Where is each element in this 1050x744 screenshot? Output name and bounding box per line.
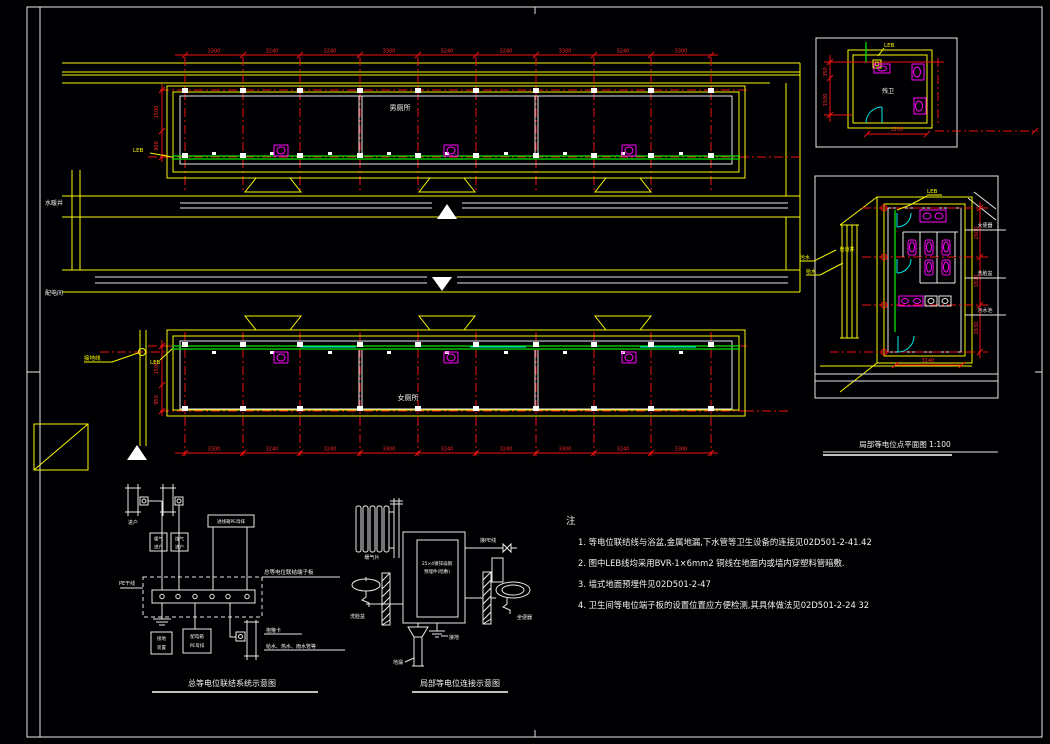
dim-label: 3300 [675,447,688,453]
shaft-label-bottom: 配电间 [45,289,63,297]
pipe-label: 给水 [806,268,816,275]
section-arrow-down [432,277,452,291]
shaft-label: 管道井 [839,246,854,253]
dim-label: 3300 [208,49,221,55]
detail-title: 局部等电位点平面图 1:100 [859,439,951,449]
top-floor-plan: 3300 3240 3240 3300 3240 3240 3300 3240 … [133,49,800,193]
door-arc [897,259,911,273]
side-label: 污水池 [977,307,992,314]
dim-label: 3240 [441,447,454,453]
basin-label: 洗脸盆 [350,613,365,620]
box-label: 接地 [157,635,166,642]
schematic-title: 局部等电位连接示意图 [420,678,500,688]
notes-header: 注 [566,515,576,527]
dim-label: 3240 [617,447,630,453]
dim-label: 3300 [675,49,688,55]
dim-label: 3300 [383,447,396,453]
box-label: 进户 [154,544,163,551]
dim-label: 1500 [823,94,829,107]
schematic-title: 总等电位联结系统示意图 [188,678,276,688]
bottom-floor-plan: 3300 3240 3240 3300 3240 3240 3300 3240 … [84,316,790,456]
dim-label: 3240 [324,49,337,55]
dim-label: 900 [154,141,160,151]
dim-label: 3240 [441,49,454,55]
fixture [899,210,951,306]
leb-label: LEB [133,148,144,154]
dim-label: 2630 [974,322,980,335]
busbar-left-label: PE干线 [119,580,135,587]
box-label: 进线箱PE母排 [217,518,246,525]
dim-label: 3300 [383,49,396,55]
leb-label: LEB [927,189,938,195]
dim-label: 3140 [922,358,935,364]
pipe-label: 污水 [800,254,810,261]
door-arc [866,107,882,123]
busbar-label: 总等电位联结端子板 [264,568,314,576]
section-arrow-up [437,204,457,219]
dim-label: 3240 [266,447,279,453]
note-item: 1. 等电位联结线与浴盆,金属地漏,下水管等卫生设备的连接见02D501-2-4… [578,537,872,547]
note-item: 4. 卫生间等电位端子板的设置位置应方便检测,其具体做法见02D501-2-24… [578,600,869,610]
door-arc [898,336,914,352]
cad-drawing-canvas: 水暖井 配电间 3300 3240 3240 3300 3240 3240 33… [0,0,1050,744]
room-label: 女厕所 [398,393,419,402]
dim-label: 3300 [559,49,572,55]
drawing-svg: 水暖井 配电间 3300 3240 3240 3300 3240 3240 33… [0,0,1050,744]
dim-label: 1500 [154,106,160,119]
dim-label: 3240 [500,447,513,453]
ground-wire-label: 接地线 [84,354,101,362]
pipes-label: 给水、热水、雨水管等 [266,643,316,650]
plate-label: 25×4镀锌扁钢 [422,560,453,567]
pipe-label: 进户 [128,519,138,526]
note-item: 3. 墙式地面预埋件见02D501-2-47 [578,579,711,589]
dim-label: 3240 [266,49,279,55]
detail-plan-small: 350 1500 1200 LEB 残卫 [816,38,1038,147]
leb-label: LEB [150,360,161,366]
side-label: 大便器 [977,222,992,229]
leb-label: LEB [884,43,895,49]
notes-block: 注 1. 等电位联结线与浴盆,金属地漏,下水管等卫生设备的连接见02D501-2… [566,515,872,610]
plate-label: 预埋件(暗敷) [424,568,450,575]
box-label: 装置 [157,644,166,651]
detail-plan-large: 管道井 污水 给水 2600 1820 2630 3140 [800,176,1006,455]
room-label: 男厕所 [390,103,411,112]
box-label: 配电箱 [190,633,204,640]
local-equipotential-schematic: 暖气片 25×4镀锌扁钢 预埋件(暗敷) 接PE线 洗脸盆 坐便器 接地 地漏 … [350,498,532,692]
drain-label: 地漏 [393,659,403,666]
box-label: 进户 [175,544,184,551]
pe-label: 接PE线 [480,537,496,544]
section-arrow-left [127,445,147,460]
dim-label: 3300 [559,447,572,453]
note-item: 2. 图中LEB线均采用BVR-1×6mm2 铜线在地面内或墙内穿塑料管暗敷. [578,558,845,568]
box-label: 暖气 [154,536,163,543]
box-label: PE母排 [190,642,205,649]
dim-label: 1200 [891,127,904,133]
toilet-label: 坐便器 [517,614,532,621]
room-label: 残卫 [882,87,894,95]
door-arc [897,213,911,227]
dim-label: 3240 [617,49,630,55]
dim-label: 3240 [500,49,513,55]
shaft-label-top: 水暖井 [45,199,63,207]
clamp-label: 抱箍卡 [266,627,281,634]
dim-label: 3300 [208,447,221,453]
dim-label: 950 [154,395,160,405]
dim-label: 3240 [324,447,337,453]
ground-label: 接地 [449,634,459,641]
side-label: 洗脸盆 [977,270,992,277]
main-equipotential-schematic: 进户 暖气 进户 煤气 进户 进线箱PE母排 PE干线 总等电位联结端子板 接地… [119,484,345,692]
dim-label: 350 [823,67,829,77]
box-label: 煤气 [175,536,184,543]
radiator-label: 暖气片 [364,554,379,561]
